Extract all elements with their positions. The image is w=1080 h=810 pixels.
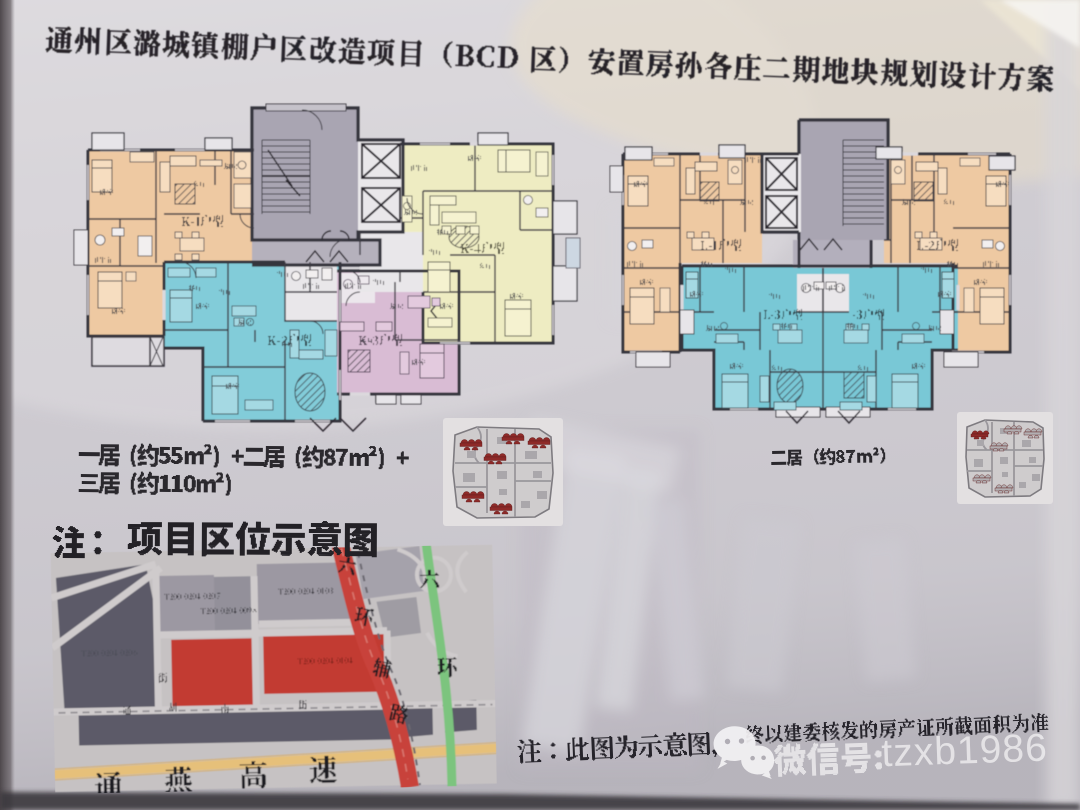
svg-text:tzxb1986: tzxb1986 [881,726,1049,775]
